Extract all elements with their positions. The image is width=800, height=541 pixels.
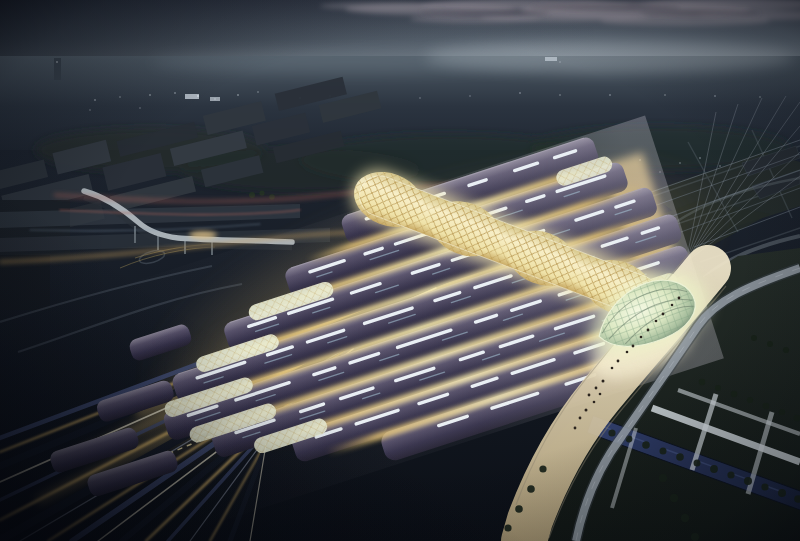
architectural-rendering-railway-station-dusk [0,0,800,541]
scene-canvas [0,0,800,541]
corner-shade [0,0,800,541]
